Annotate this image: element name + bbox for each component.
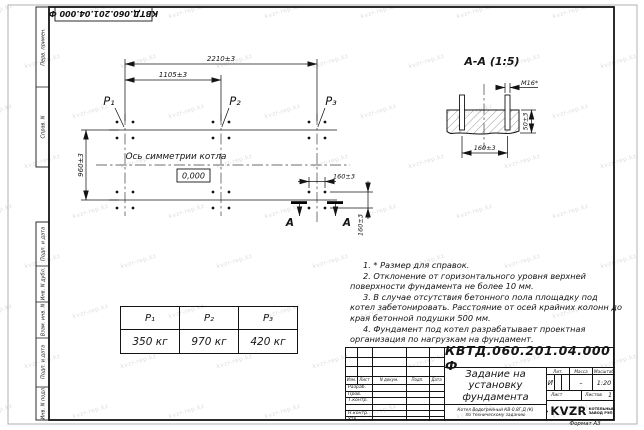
tb-sheet-label: Лист — [546, 391, 581, 401]
format-note: Формат А3 — [540, 421, 630, 427]
tb-company-cell: KVZR КОТЕЛЬНЫЙ ЗАВОД РЭП — [546, 401, 615, 421]
dim-bolt-horizontal: 160±3 — [333, 173, 355, 181]
tb-col-izm: Изм. — [346, 377, 357, 384]
section-letter-right: А — [342, 217, 351, 229]
tb-row-tkontr: Т.контр. — [348, 398, 372, 403]
section-view: А-А (1:5) М16* 160±3 50±3 — [447, 55, 539, 158]
anchor-bolt-right — [505, 95, 510, 130]
tb-scale-header: Масштаб — [592, 368, 615, 375]
stamp-perv-primen: Перв. примен. — [41, 28, 47, 66]
doc-number-top: КВТД.060.201.04.000 Ф — [49, 9, 158, 18]
section-dim-width: 160±3 — [474, 144, 496, 152]
tb-mass-header: Масса — [569, 368, 592, 375]
anchor-bolt-left — [460, 95, 465, 130]
stamp-inv-dubl: Инв. N дубл. — [41, 268, 47, 301]
drawing-page: kvzr-rep.kzkvzr-rep.kzkvzr-rep.kzkvzr-re… — [0, 0, 644, 430]
kvzr-logo-icon — [547, 405, 548, 418]
tb-lit-cells: И — [546, 375, 569, 391]
tb-title-line1: Задание на — [465, 369, 526, 381]
tb-lit-empty-1 — [554, 375, 562, 390]
loads-header-row: P₁ P₂ P₃ — [121, 307, 298, 330]
tb-company-line2: ЗАВОД РЭП — [589, 411, 615, 415]
tb-row-nkontr: Н.контр. — [348, 411, 372, 416]
tb-line — [346, 357, 444, 358]
tb-line — [346, 366, 444, 367]
tb-logo-text: KVZR — [550, 404, 586, 418]
stamp-podp-data-2: Подп. и дата — [41, 345, 47, 379]
tb-sheets-cell: Листов 1 — [581, 391, 615, 401]
dim-bolt-vertical: 160±3 — [357, 214, 365, 236]
tb-col-ndoc: N докум. — [372, 377, 406, 384]
dim-2210: 2210±3 — [207, 55, 235, 63]
point-label-p3: P₃ — [325, 94, 337, 108]
note-2: 2. Отклонение от горизонтального уровня … — [350, 271, 624, 292]
tb-product-name: Котел Водогрейный КВ-0,8Г,Д (К) по техни… — [444, 405, 546, 421]
section-letter-left: А — [285, 217, 294, 229]
tb-title-line3: фундамента — [462, 392, 528, 404]
axis-symmetry-label: Ось симметрии котла — [126, 152, 227, 162]
point-label-p1: P₁ — [103, 94, 115, 108]
section-title: А-А (1:5) — [463, 55, 519, 68]
tb-row-utv: Утв. — [348, 417, 372, 422]
load-p2-value: 970 кг — [180, 330, 239, 354]
tb-document-title: Задание на установку фундамента — [444, 368, 546, 405]
tb-lit-header: Лит. — [546, 368, 569, 375]
tb-doc-number: КВТД.060.201.04.000 Ф — [444, 348, 615, 368]
point-label-p2: P₂ — [229, 94, 241, 108]
note-3: 3. В случае отсутствия бетонного пола пл… — [350, 292, 624, 324]
dim-960: 960±3 — [77, 153, 85, 177]
stamp-inv-podl: Инв. N подл. — [41, 386, 47, 419]
tb-row-prov: Пров. — [348, 392, 372, 397]
load-p3-value: 420 кг — [239, 330, 298, 354]
tb-col-data: Дата — [429, 377, 444, 384]
load-p2-header: P₂ — [180, 307, 239, 330]
section-cut-marks: А А — [285, 203, 351, 229]
stamp-podp-data-1: Подп. и дата — [41, 227, 47, 261]
note-1: 1. * Размер для справок. — [350, 260, 624, 271]
tb-scale-value: 1:20 — [592, 375, 615, 391]
load-p1-value: 350 кг — [121, 330, 180, 354]
section-dim-height: 50±3 — [522, 113, 530, 131]
stamp-sprav-n: Справ. N — [41, 115, 47, 138]
loads-value-row: 350 кг 970 кг 420 кг — [121, 330, 298, 354]
elevation-mark: 0,000 — [182, 172, 205, 181]
tb-mass-value: – — [569, 375, 592, 391]
tb-title-line2: установку — [469, 380, 523, 392]
title-block: Изм. Лист N докум. Подп. Дата Разраб. Пр… — [345, 347, 614, 420]
tb-lit-value: И — [547, 375, 554, 390]
loads-table: P₁ P₂ P₃ 350 кг 970 кг 420 кг — [120, 306, 298, 354]
tb-sheets-label: Листов — [585, 393, 602, 398]
tb-sheets-value: 1 — [608, 392, 612, 399]
tb-lit-empty-2 — [561, 375, 569, 390]
bolt-thread-label: М16* — [521, 79, 539, 87]
tb-row-razrab: Разраб. — [348, 385, 372, 390]
tb-col-list: Лист — [357, 377, 372, 384]
tb-line — [346, 404, 444, 405]
dim-1105: 1105±3 — [159, 71, 187, 79]
stamp-vzam-inv: Взам. инв. N — [41, 304, 47, 337]
tb-col-podp: Подп. — [406, 377, 429, 384]
load-p3-header: P₃ — [239, 307, 298, 330]
technical-notes: 1. * Размер для справок. 2. Отклонение о… — [350, 260, 624, 345]
load-p1-header: P₁ — [121, 307, 180, 330]
plan-view: P₁ P₂ P₃ 1105±3 2210±3 960±3 160±3 — [77, 55, 373, 236]
